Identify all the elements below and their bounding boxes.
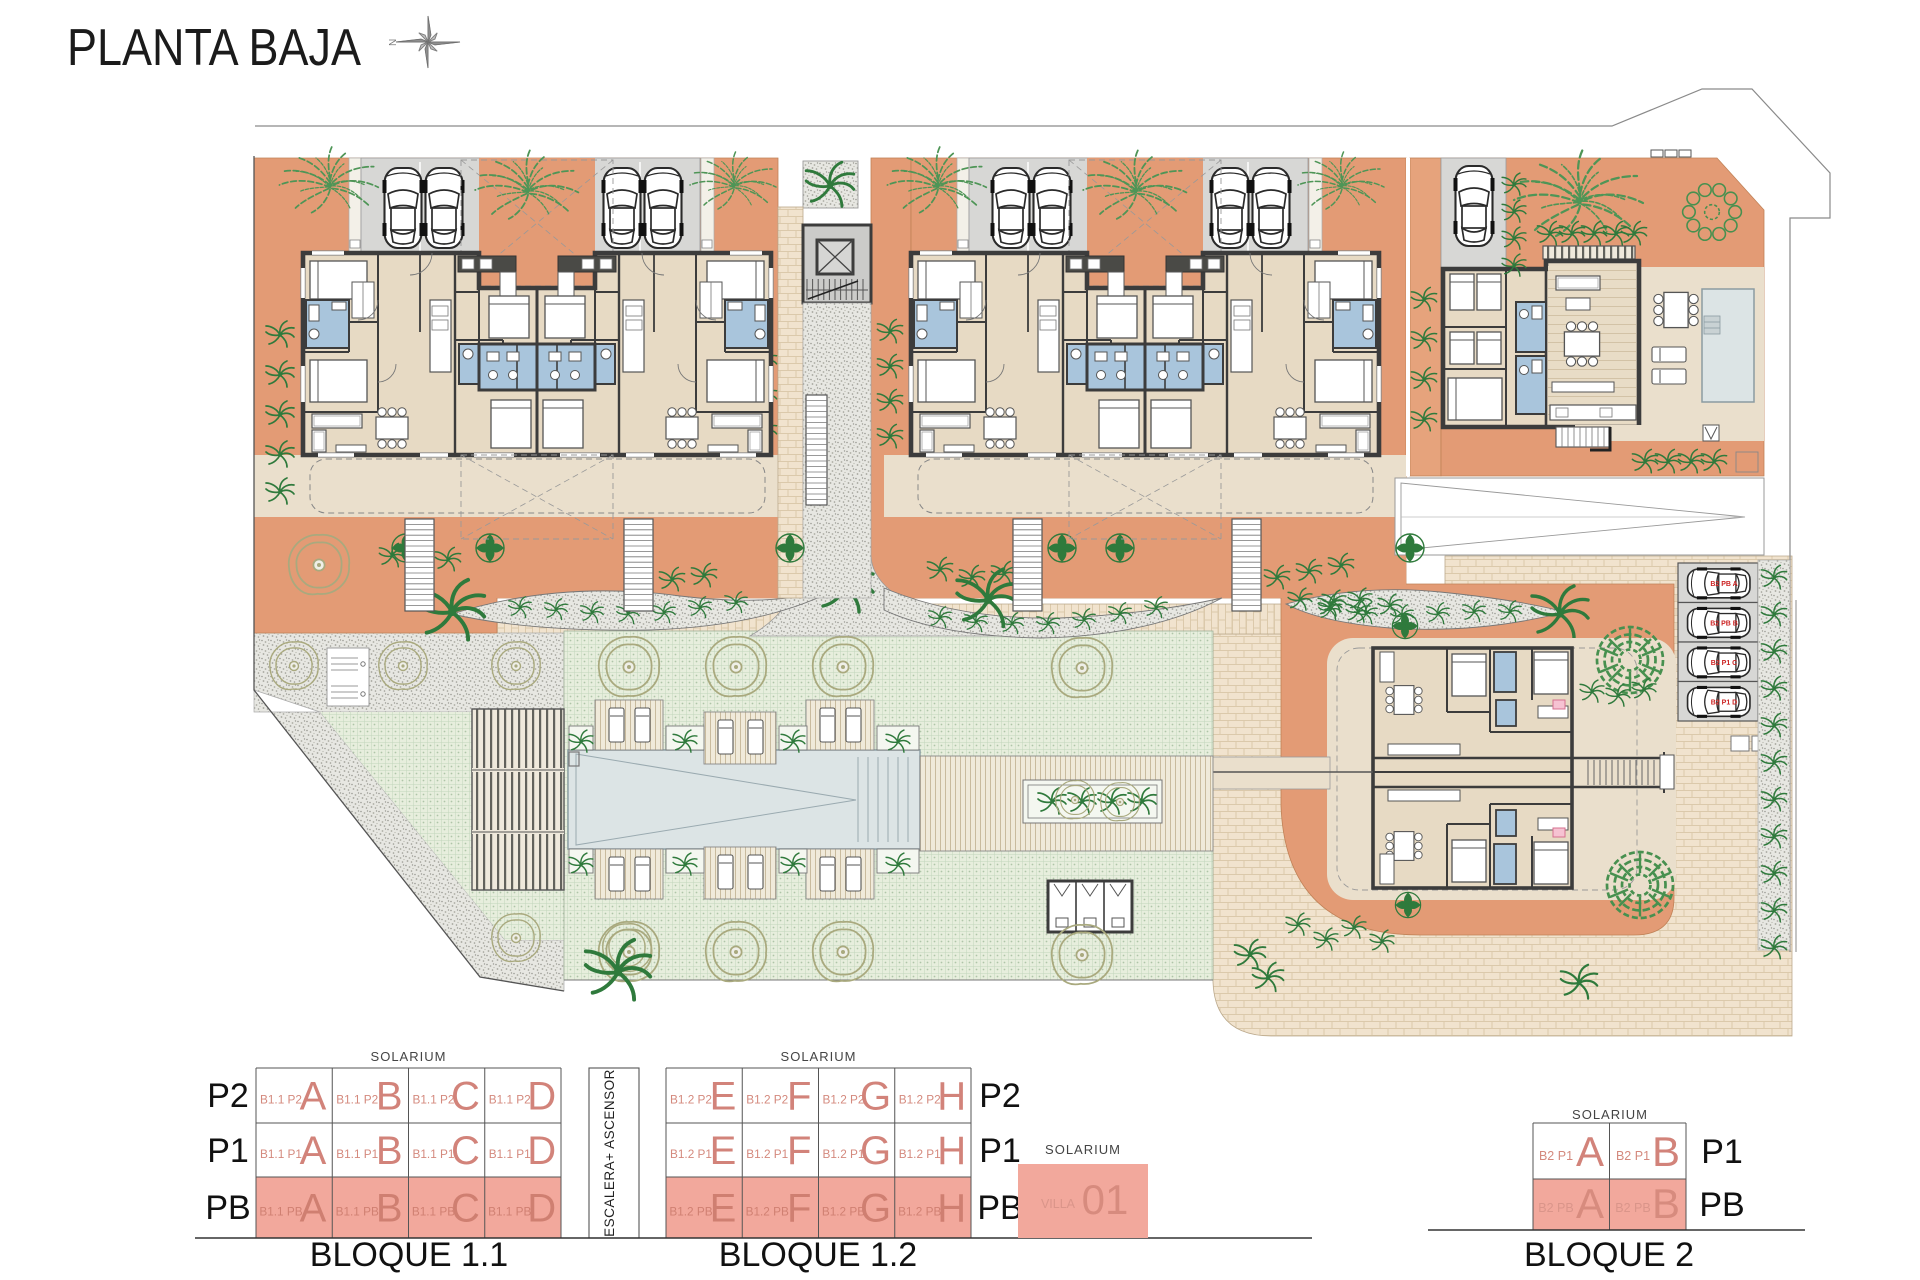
- svg-text:B1.1 PB: B1.1 PB: [412, 1205, 455, 1219]
- svg-text:P2: P2: [207, 1077, 249, 1115]
- svg-text:A: A: [300, 1187, 327, 1231]
- svg-text:B1.1 P2: B1.1 P2: [489, 1093, 531, 1107]
- svg-text:SOLARIUM: SOLARIUM: [781, 1049, 857, 1064]
- svg-text:B2 PB A: B2 PB A: [1710, 581, 1737, 588]
- svg-text:P2: P2: [979, 1077, 1021, 1115]
- svg-text:B2 P1 C: B2 P1 C: [1711, 660, 1737, 667]
- svg-text:P1: P1: [207, 1132, 249, 1170]
- svg-text:BLOQUE 2: BLOQUE 2: [1524, 1236, 1694, 1274]
- svg-text:C: C: [451, 1187, 480, 1231]
- svg-text:A: A: [1576, 1128, 1604, 1175]
- svg-text:B1.2 PB: B1.2 PB: [669, 1205, 712, 1219]
- svg-text:B2 PB B: B2 PB B: [1710, 621, 1738, 628]
- svg-text:B1.2 P2: B1.2 P2: [823, 1093, 865, 1107]
- svg-text:PB: PB: [977, 1189, 1022, 1227]
- svg-text:B1.2 P2: B1.2 P2: [899, 1093, 941, 1107]
- svg-text:B1.1 P2: B1.1 P2: [336, 1093, 378, 1107]
- svg-text:VILLA: VILLA: [1041, 1197, 1076, 1211]
- svg-text:G: G: [860, 1075, 891, 1119]
- svg-text:B1.1 PB: B1.1 PB: [336, 1205, 379, 1219]
- svg-text:B1.1 P1: B1.1 P1: [413, 1147, 455, 1161]
- svg-text:B1.2 PB: B1.2 PB: [898, 1205, 941, 1219]
- svg-text:E: E: [710, 1187, 737, 1231]
- svg-text:D: D: [527, 1129, 556, 1173]
- svg-text:H: H: [937, 1129, 966, 1173]
- svg-text:B1.1 P1: B1.1 P1: [260, 1147, 302, 1161]
- svg-text:H: H: [937, 1187, 966, 1231]
- svg-text:B1.2 P1: B1.2 P1: [823, 1147, 865, 1161]
- svg-text:PB: PB: [205, 1189, 250, 1227]
- svg-text:SOLARIUM: SOLARIUM: [1045, 1142, 1121, 1157]
- svg-text:SOLARIUM: SOLARIUM: [371, 1049, 447, 1064]
- svg-text:H: H: [937, 1075, 966, 1119]
- svg-text:C: C: [451, 1075, 480, 1119]
- svg-text:B1.1 P1: B1.1 P1: [336, 1147, 378, 1161]
- svg-text:E: E: [710, 1075, 737, 1119]
- svg-text:D: D: [527, 1187, 556, 1231]
- svg-text:BLOQUE 1.1: BLOQUE 1.1: [310, 1236, 508, 1274]
- svg-text:E: E: [710, 1129, 737, 1173]
- svg-text:A: A: [1576, 1180, 1604, 1227]
- svg-text:SOLARIUM: SOLARIUM: [1572, 1107, 1648, 1122]
- svg-text:B1.2 PB: B1.2 PB: [822, 1205, 865, 1219]
- svg-text:BLOQUE 1.2: BLOQUE 1.2: [719, 1236, 917, 1274]
- svg-text:PLANTA BAJA: PLANTA BAJA: [67, 19, 361, 77]
- svg-text:F: F: [787, 1187, 811, 1231]
- svg-text:B2 P1: B2 P1: [1616, 1149, 1650, 1163]
- svg-text:B1.2 P2: B1.2 P2: [746, 1093, 788, 1107]
- svg-text:B: B: [1652, 1128, 1680, 1175]
- svg-text:N: N: [388, 39, 399, 46]
- svg-text:B1.2 P1: B1.2 P1: [899, 1147, 941, 1161]
- svg-text:PB: PB: [1699, 1186, 1744, 1224]
- svg-text:D: D: [527, 1075, 556, 1119]
- svg-text:B2 PB: B2 PB: [1615, 1201, 1650, 1215]
- svg-text:B: B: [376, 1187, 403, 1231]
- svg-text:F: F: [787, 1075, 811, 1119]
- svg-text:P1: P1: [1701, 1133, 1743, 1171]
- svg-text:B1.2 P2: B1.2 P2: [670, 1093, 712, 1107]
- svg-text:B1.1 PB: B1.1 PB: [259, 1205, 302, 1219]
- svg-text:B1.2 P1: B1.2 P1: [670, 1147, 712, 1161]
- svg-text:C: C: [451, 1129, 480, 1173]
- svg-text:B1.2 P1: B1.2 P1: [746, 1147, 788, 1161]
- svg-text:A: A: [300, 1075, 327, 1119]
- svg-text:B2 P1 D: B2 P1 D: [1711, 700, 1737, 707]
- svg-text:B1.2 PB: B1.2 PB: [746, 1205, 789, 1219]
- svg-text:ESCALERA+ ASCENSOR: ESCALERA+ ASCENSOR: [602, 1069, 617, 1237]
- svg-text:F: F: [787, 1129, 811, 1173]
- svg-text:G: G: [860, 1187, 891, 1231]
- svg-text:B: B: [1652, 1180, 1680, 1227]
- svg-text:B1.1 PB: B1.1 PB: [488, 1205, 531, 1219]
- svg-text:B1.1 P2: B1.1 P2: [413, 1093, 455, 1107]
- svg-text:B2 PB: B2 PB: [1538, 1201, 1573, 1215]
- svg-text:B: B: [376, 1129, 403, 1173]
- svg-text:A: A: [300, 1129, 327, 1173]
- svg-text:01: 01: [1082, 1176, 1129, 1223]
- svg-text:G: G: [860, 1129, 891, 1173]
- svg-text:B2 P1: B2 P1: [1539, 1149, 1573, 1163]
- svg-text:B: B: [376, 1075, 403, 1119]
- svg-text:B1.1 P1: B1.1 P1: [489, 1147, 531, 1161]
- svg-text:P1: P1: [979, 1132, 1021, 1170]
- svg-text:B1.1 P2: B1.1 P2: [260, 1093, 302, 1107]
